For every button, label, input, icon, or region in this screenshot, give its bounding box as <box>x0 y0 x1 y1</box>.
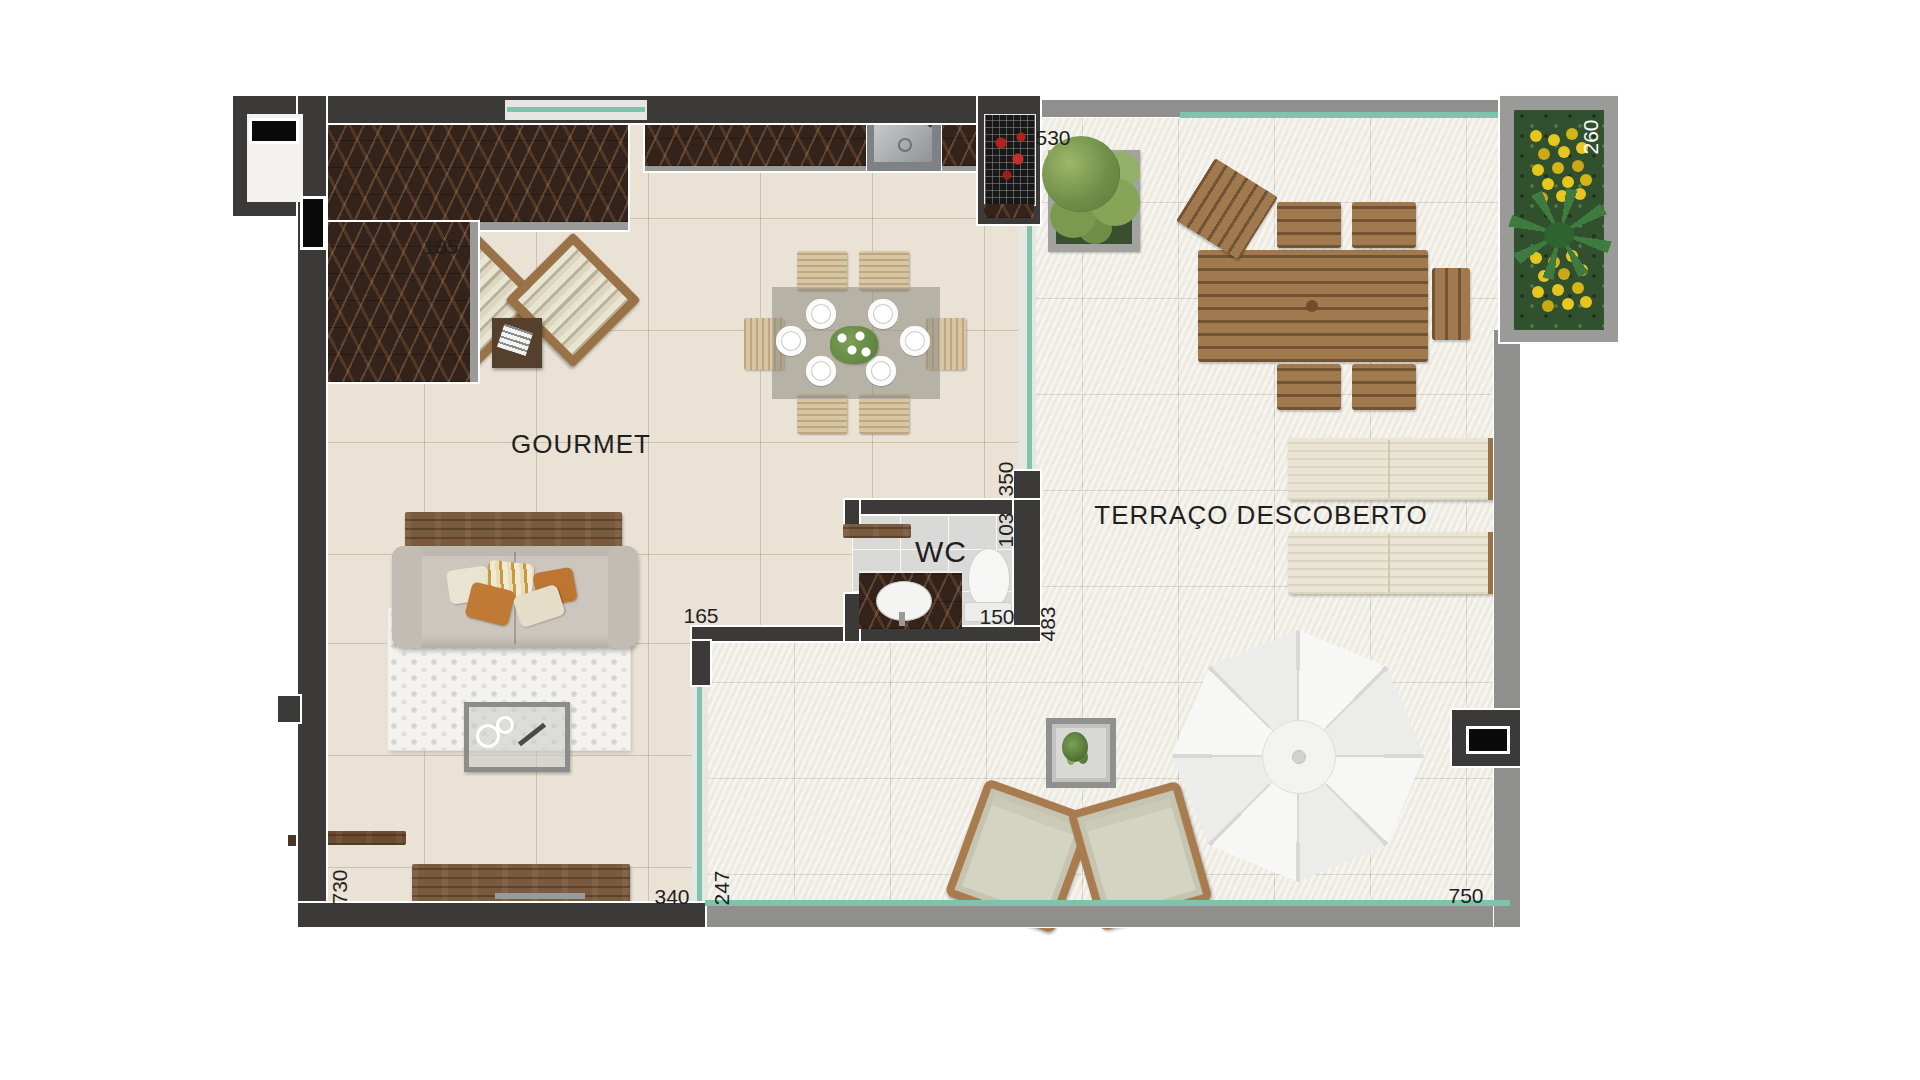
dim-483: 483 <box>1036 606 1060 641</box>
wc-wall-west-bottom <box>845 594 859 641</box>
tv-sideboard <box>412 864 630 906</box>
dim-103: 103 <box>994 512 1018 547</box>
window-marker-top-left <box>249 118 299 144</box>
upper-partition-glass <box>1027 222 1032 473</box>
palm-plant-center <box>1544 222 1574 248</box>
flower-cluster <box>1530 130 1542 142</box>
gourmet-label: GOURMET <box>511 429 651 460</box>
sun-lounger-split <box>1388 440 1390 498</box>
outdoor-chair <box>1352 364 1416 410</box>
plate-icon <box>806 356 836 386</box>
window-marker-right <box>1466 726 1510 754</box>
dining-chair <box>797 251 847 291</box>
sink-drain-icon <box>898 138 912 152</box>
sofa-armrest <box>608 546 638 648</box>
window-marker-left <box>300 196 326 250</box>
sun-lounger <box>1288 438 1498 500</box>
dim-530: 530 <box>1035 126 1070 150</box>
sun-lounger-split <box>1388 534 1390 592</box>
plate-icon <box>806 299 836 329</box>
dining-chair <box>859 251 909 291</box>
wc-wall-west-top <box>845 500 859 526</box>
outdoor-chair <box>1277 202 1341 248</box>
soundbar-icon <box>495 893 585 899</box>
flower-centerpiece <box>830 326 878 364</box>
lower-partition-glass <box>697 685 702 903</box>
grill-counter-strip <box>984 204 1034 218</box>
dim-260: 260 <box>1579 119 1603 154</box>
inner-wall-165 <box>692 627 859 641</box>
dim-350: 350 <box>994 461 1018 496</box>
terrace-label: TERRAÇO DESCOBERTO <box>1094 500 1427 531</box>
left-wall-stub <box>278 696 300 722</box>
outdoor-chair <box>1432 268 1470 340</box>
sun-lounger <box>1288 532 1498 594</box>
plate-icon <box>866 356 896 386</box>
plate-icon <box>868 299 898 329</box>
wc-sink-faucet-icon <box>899 612 905 626</box>
dim-750: 750 <box>1448 884 1483 908</box>
top-window-glass <box>507 107 645 112</box>
plate-icon <box>900 326 930 356</box>
dining-chair <box>797 394 847 434</box>
inner-wall-stub <box>692 641 710 685</box>
floor-plan: GOURMET WC TERRAÇO DESCOBERTO 185 530 26… <box>0 0 1920 1080</box>
bottom-wall-gourmet <box>298 903 705 927</box>
coffee-table-decor-icon <box>496 716 514 734</box>
bottom-glass-rail <box>705 900 1510 906</box>
l-counter-horizontal <box>328 124 628 230</box>
dining-chair <box>859 394 909 434</box>
dim-185: 185 <box>423 235 458 259</box>
wc-label: WC <box>915 535 967 569</box>
plate-icon <box>776 326 806 356</box>
bottom-wall-terrace <box>705 906 1517 927</box>
dim-730: 730 <box>328 869 352 904</box>
dim-165: 165 <box>683 604 718 628</box>
right-wall <box>1494 330 1520 927</box>
outdoor-chair <box>1352 202 1416 248</box>
umbrella-pole-icon <box>1292 750 1306 764</box>
outdoor-chair <box>1277 364 1341 410</box>
dim-340: 340 <box>654 885 689 909</box>
toilet-bowl <box>968 548 1010 608</box>
dim-150: 150 <box>979 605 1014 629</box>
wc-wall-south <box>845 627 1040 641</box>
sofa-armrest <box>392 546 422 648</box>
console-table <box>405 512 622 548</box>
barbecue-grill <box>984 114 1036 206</box>
dim-247: 247 <box>710 870 734 905</box>
outdoor-table-hole-icon <box>1306 300 1318 312</box>
terrace-top-glass-rail <box>1180 112 1508 118</box>
wc-door-leaf <box>843 524 911 538</box>
small-plant-icon <box>1062 732 1088 762</box>
